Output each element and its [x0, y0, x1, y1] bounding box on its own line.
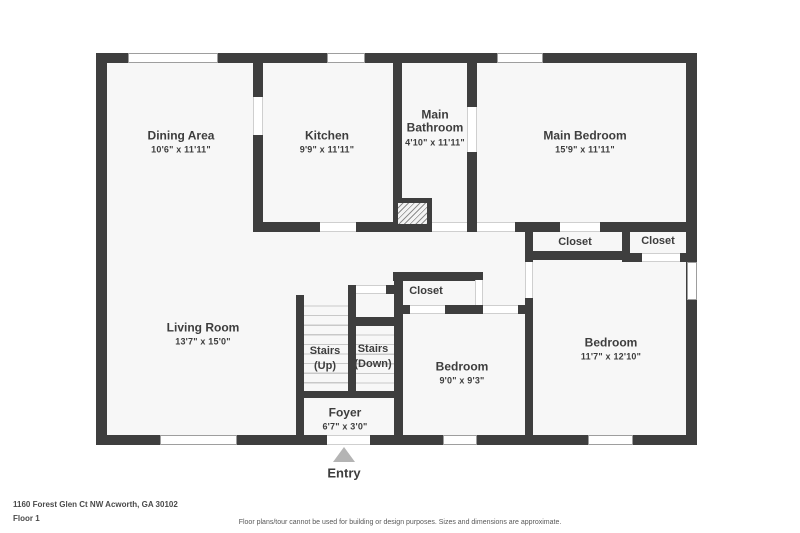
door-mid-closet: [410, 305, 445, 314]
room-label-bedroom-middle: Bedroom 9'0" x 9'3": [436, 360, 489, 385]
room-label-main-bathroom: Main Bathroom 4'10" x 11'11": [404, 109, 466, 148]
wall-main-closet-bottom: [525, 251, 630, 260]
closet-label-right: Closet: [641, 235, 675, 247]
wall-stairs-divider: [348, 285, 356, 397]
closet-label-main: Closet: [558, 236, 592, 248]
door-nook: [475, 280, 483, 305]
room-name: Foyer: [322, 406, 367, 419]
room-dims: 9'0" x 9'3": [436, 376, 489, 386]
door-stairs-landing: [356, 285, 386, 294]
room-label-kitchen: Kitchen 9'9" x 11'11": [300, 129, 354, 154]
room-dims: 13'7" x 15'0": [167, 337, 240, 347]
room-name: Main Bedroom: [543, 129, 626, 142]
floor-number-label: Floor 1: [13, 514, 40, 523]
door-bathroom-bedroom: [467, 107, 477, 152]
room-dims: 4'10" x 11'11": [404, 137, 466, 147]
wall-stairs-left: [296, 295, 304, 445]
room-name: Living Room: [167, 321, 240, 334]
room-name: Dining Area: [148, 129, 215, 142]
window-right-wall: [687, 262, 697, 300]
room-name: Bedroom: [581, 336, 641, 349]
entry-opening: [327, 435, 370, 445]
wall-foyer-bedroom: [394, 272, 403, 445]
window-main-bedroom: [497, 53, 543, 63]
entry-arrow-icon: [333, 447, 355, 462]
stairs-label-line: (Down): [354, 357, 391, 372]
room-label-main-bedroom: Main Bedroom 15'9" x 11'11": [543, 129, 626, 154]
door-hallway-opening: [477, 222, 515, 232]
wall-outer-right: [686, 53, 697, 445]
room-dims: 6'7" x 3'0": [322, 422, 367, 432]
closet-label-middle: Closet: [409, 285, 443, 297]
wall-outer-left: [96, 53, 107, 445]
wall-stairs-down-top: [348, 317, 403, 326]
wall-mid-closet-top: [393, 272, 483, 281]
window-mid-bedroom: [443, 435, 477, 445]
door-dining-kitchen: [253, 97, 263, 135]
door-right-closet: [642, 253, 680, 262]
stairs-down-label: Stairs (Down): [354, 342, 391, 372]
door-right-bedroom: [525, 262, 533, 298]
wall-dining-kitchen: [253, 63, 263, 232]
door-kitchen-hall: [320, 222, 356, 232]
room-label-living-room: Living Room 13'7" x 15'0": [167, 321, 240, 346]
entry-label: Entry: [327, 466, 360, 481]
disclaimer-text: Floor plans/tour cannot be used for buil…: [239, 519, 562, 526]
window-right-bedroom: [588, 435, 633, 445]
room-dims: 11'7" x 12'10": [581, 352, 641, 362]
wall-landing-stub: [386, 285, 397, 294]
wall-stairs-bottom-line: [296, 391, 403, 398]
window-living-room: [160, 435, 237, 445]
door-mid-bedroom: [483, 305, 518, 314]
floor-plan-page: Dining Area 10'6" x 11'11" Kitchen 9'9" …: [0, 0, 800, 533]
room-name: Kitchen: [300, 129, 354, 142]
property-address: 1160 Forest Glen Ct NW Acworth, GA 30102: [13, 500, 178, 509]
room-dims: 9'9" x 11'11": [300, 145, 354, 155]
window-kitchen: [327, 53, 365, 63]
door-main-closet: [560, 222, 600, 232]
shower-hatch: [398, 198, 432, 224]
room-label-foyer: Foyer 6'7" x 3'0": [322, 406, 367, 431]
room-name: Bedroom: [436, 360, 489, 373]
door-bathroom-hall: [432, 222, 467, 232]
stairs-up-label: Stairs (Up): [310, 344, 341, 374]
room-label-dining-area: Dining Area 10'6" x 11'11": [148, 129, 215, 154]
window-dining: [128, 53, 218, 63]
room-dims: 15'9" x 11'11": [543, 145, 626, 155]
stairs-label-line: Stairs: [310, 344, 341, 359]
room-name: Main Bathroom: [404, 109, 466, 136]
stairs-label-line: (Up): [310, 359, 341, 374]
room-label-bedroom-right: Bedroom 11'7" x 12'10": [581, 336, 641, 361]
stairs-label-line: Stairs: [354, 342, 391, 357]
room-dims: 10'6" x 11'11": [148, 145, 215, 155]
